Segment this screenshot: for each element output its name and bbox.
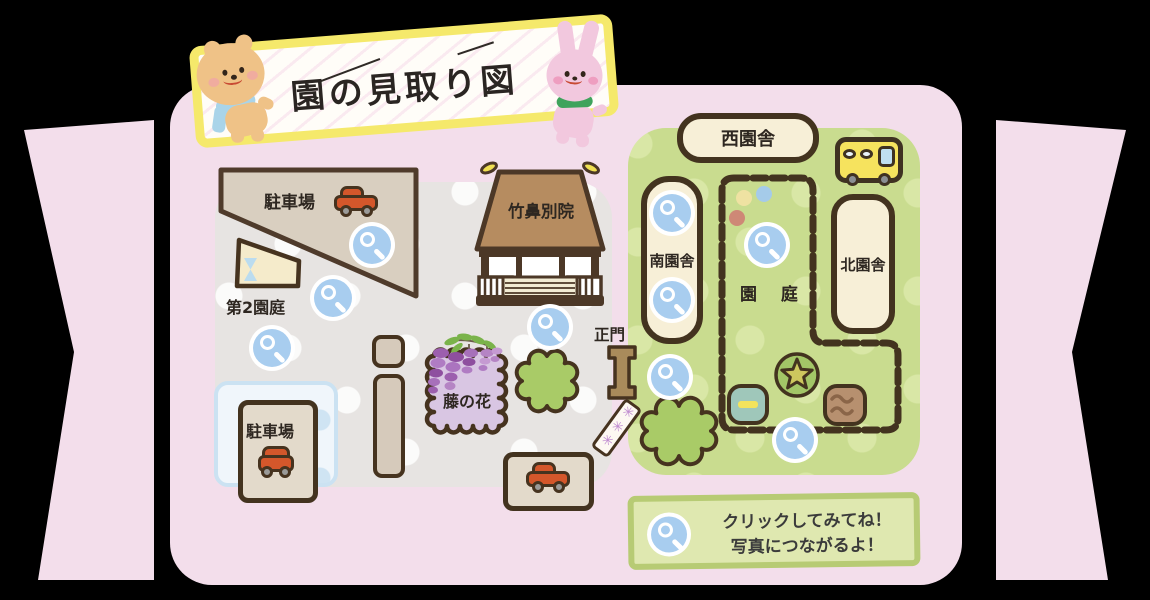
west-building-label: 西園舎 bbox=[721, 125, 775, 151]
magnifier-hotspot[interactable] bbox=[310, 275, 356, 321]
magnifier-hotspot[interactable] bbox=[527, 304, 573, 350]
main-gate-icon bbox=[609, 347, 635, 398]
magnifier-hotspot[interactable] bbox=[649, 190, 695, 236]
wisteria-label: 藤の花 bbox=[437, 388, 497, 412]
rabbit-mascot bbox=[532, 17, 633, 149]
south-building-label: 南園舎 bbox=[649, 250, 694, 271]
north-building-label: 北園舎 bbox=[840, 254, 885, 275]
sandbox-bar bbox=[738, 401, 758, 408]
pencil-scribble bbox=[457, 41, 494, 55]
temple-label: 竹鼻別院 bbox=[498, 198, 584, 222]
parking-top-label: 駐車場 bbox=[264, 188, 315, 213]
kindergarten-map: 園の見取り図 駐車場 第2園庭 竹鼻別院 藤の花 正門 駐車場 西園舎 南園舎 bbox=[0, 0, 1150, 600]
car-icon bbox=[334, 186, 378, 218]
play-dot-blue bbox=[756, 186, 772, 202]
garden-label: 園 庭 bbox=[740, 280, 807, 305]
bush-icon bbox=[642, 398, 717, 464]
second-garden-label: 第2園庭 bbox=[226, 294, 285, 318]
legend-line-1: クリックしてみてね！ bbox=[698, 508, 916, 536]
car-icon bbox=[258, 446, 298, 480]
long-building-block bbox=[373, 374, 405, 478]
car-icon bbox=[526, 462, 570, 494]
sandbox-brown-icon bbox=[825, 386, 865, 424]
parking-bottom-label: 駐車場 bbox=[246, 418, 294, 442]
play-dot-red bbox=[729, 210, 745, 226]
west-building: 西園舎 bbox=[677, 113, 819, 163]
magnifier-hotspot[interactable] bbox=[249, 325, 295, 371]
magnifier-hotspot[interactable] bbox=[649, 277, 695, 323]
legend-box: クリックしてみてね！ 写真につながるよ！ bbox=[627, 492, 920, 570]
school-bus-icon bbox=[835, 137, 903, 183]
tree-icon bbox=[517, 351, 578, 412]
magnifier-icon bbox=[647, 512, 692, 557]
magnifier-hotspot[interactable] bbox=[744, 222, 790, 268]
north-building: 北園舎 bbox=[831, 194, 895, 334]
magnifier-hotspot[interactable] bbox=[647, 354, 693, 400]
small-building-block bbox=[372, 335, 405, 368]
main-gate-label: 正門 bbox=[594, 323, 625, 345]
legend-line-2: 写真につながるよ！ bbox=[698, 533, 916, 561]
bear-mascot bbox=[190, 26, 293, 149]
temple-building bbox=[476, 161, 604, 306]
magnifier-hotspot[interactable] bbox=[772, 417, 818, 463]
magnifier-hotspot[interactable] bbox=[349, 222, 395, 268]
play-dot-yellow bbox=[736, 190, 752, 206]
